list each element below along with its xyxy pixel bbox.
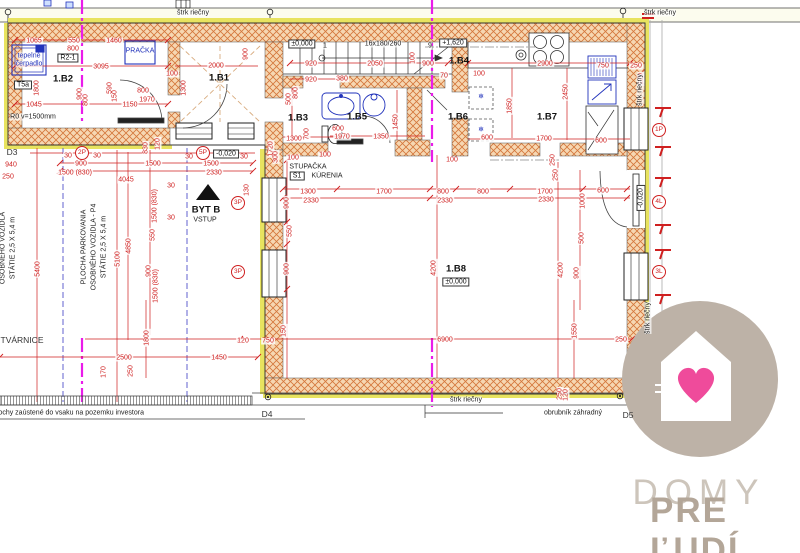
logo-text-pre-ludi: PRE ĽUDÍ <box>650 491 750 553</box>
top-symbols <box>44 0 190 8</box>
dimension-ticks <box>0 37 635 360</box>
plan-drawing <box>0 0 800 553</box>
dimension-lines <box>0 37 643 402</box>
entrance-arrow <box>196 184 220 200</box>
floor-plan-sheet: štrk riečnyštrk riečny106555080014603095… <box>0 0 800 553</box>
washbasin-icon <box>322 93 385 119</box>
section-lines <box>82 0 432 407</box>
insulation-strips <box>4 18 652 398</box>
washer-icon <box>125 41 155 64</box>
canopy-dashes <box>180 46 260 122</box>
fridge-icon <box>469 87 493 141</box>
logo <box>622 301 778 457</box>
